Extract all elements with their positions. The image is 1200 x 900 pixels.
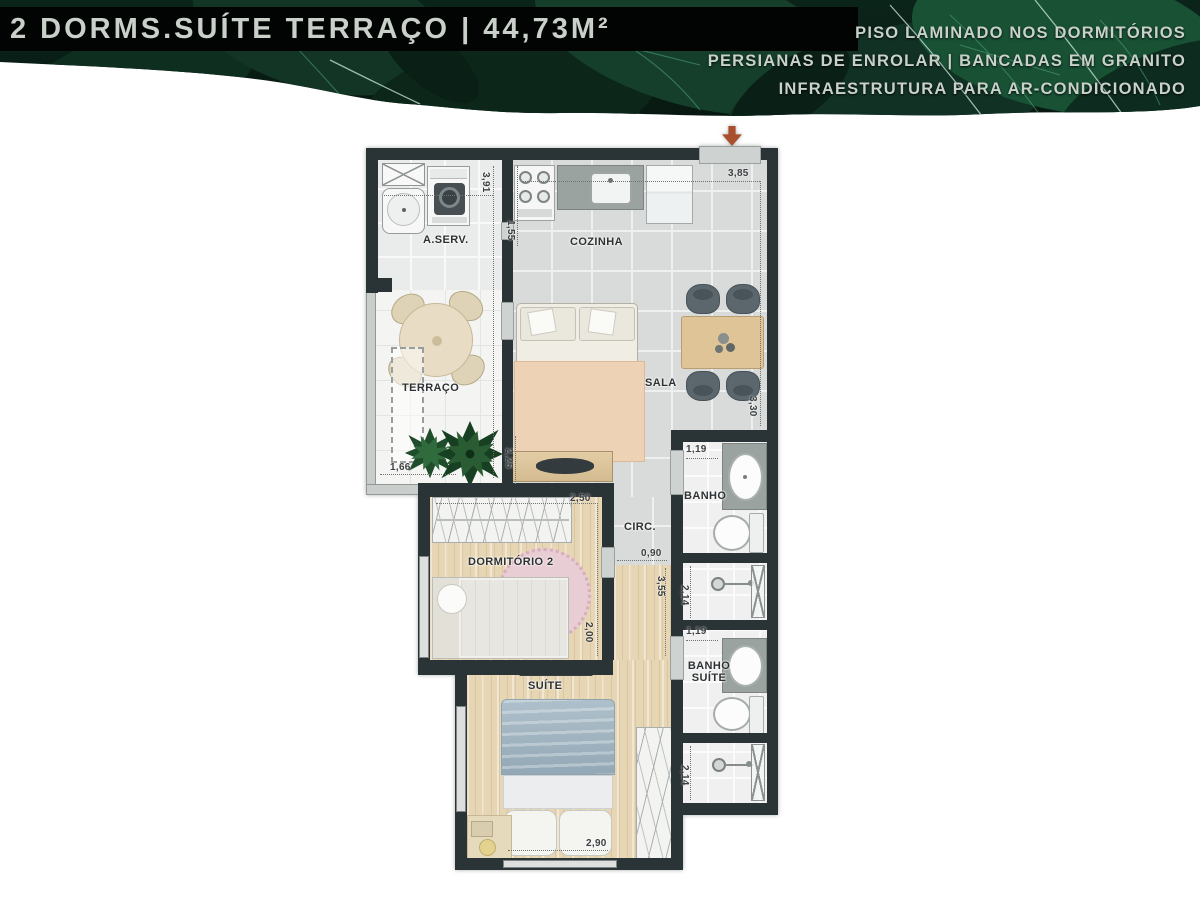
- washer-window: [439, 187, 460, 208]
- chair-seat: [693, 289, 713, 300]
- floor-plan: 3,91 1,55 3,85 3,30 2,25 1,66 2,50 2,00 …: [0, 0, 1200, 900]
- burner: [519, 171, 532, 184]
- door-bath-suite: [670, 636, 684, 680]
- dimension-line: [517, 166, 518, 246]
- dimension-line: [760, 181, 761, 426]
- entry-arrow-icon: [722, 126, 742, 146]
- tv-rack: [512, 451, 613, 482]
- laundry-cabinet: [382, 163, 425, 186]
- wall: [366, 148, 702, 160]
- door-bath: [670, 450, 684, 495]
- bath-counter: [722, 443, 767, 510]
- bed-pillow: [437, 584, 467, 614]
- burner: [537, 190, 550, 203]
- chair-seat: [733, 289, 753, 300]
- shower-glass: [751, 565, 765, 618]
- dimension-line: [686, 640, 718, 641]
- sofa-pillow: [587, 308, 616, 335]
- washer-door: [434, 183, 465, 215]
- wall: [366, 148, 378, 293]
- dimension-line: [597, 503, 598, 656]
- room-label-bedroom2: DORMITÓRIO 2: [468, 556, 553, 568]
- wall: [683, 553, 767, 563]
- wall: [502, 148, 513, 222]
- dimension-line: [508, 850, 608, 851]
- chair-seat: [693, 385, 713, 396]
- dining-chair: [726, 284, 760, 314]
- dimension-label: 2,14: [679, 585, 690, 606]
- sofa-pillow: [527, 308, 557, 336]
- shower-head-icon: [711, 577, 725, 591]
- dining-chair: [686, 371, 720, 401]
- entry-door: [699, 146, 761, 164]
- fridge: [646, 165, 693, 224]
- room-label-bath-suite: BANHO SUÍTE: [683, 660, 735, 684]
- washing-machine: [427, 166, 470, 226]
- rug-book: [471, 821, 493, 837]
- kitchen-counter: [557, 165, 644, 210]
- shower-glass: [751, 744, 765, 801]
- dimension-line: [523, 181, 760, 182]
- dimension-line: [690, 566, 691, 618]
- tv: [536, 458, 594, 474]
- wall: [418, 660, 613, 675]
- wall: [767, 148, 778, 815]
- dimension-line: [384, 195, 493, 196]
- wall: [683, 733, 767, 743]
- dimension-label: 2,00: [583, 622, 594, 643]
- wall: [683, 803, 767, 815]
- burner: [519, 190, 532, 203]
- room-label-suite: SUÍTE: [528, 680, 562, 692]
- kitchen-sink: [590, 172, 632, 205]
- toilet-tank: [749, 513, 764, 553]
- dimension-label: 1,55: [505, 220, 516, 241]
- rug-ball: [479, 839, 496, 856]
- single-bed: [432, 577, 569, 659]
- wardrobe-rail: [437, 519, 569, 521]
- dimension-line: [515, 436, 516, 484]
- dimension-line: [493, 166, 494, 478]
- dimension-line: [617, 560, 667, 561]
- dimension-label: 3,85: [728, 168, 749, 179]
- room-label-service: A.SERV.: [423, 234, 469, 246]
- sink-drain: [743, 475, 747, 479]
- washer-base: [432, 217, 467, 223]
- dimension-label: 1,66: [390, 462, 411, 473]
- stove: [514, 165, 555, 221]
- shower-head-icon: [712, 758, 726, 772]
- double-bed: [501, 699, 615, 859]
- dimension-label: 3,91: [480, 172, 491, 193]
- window: [419, 556, 429, 658]
- room-label-terrace: TERRAÇO: [402, 382, 459, 394]
- door-bedroom2: [601, 547, 615, 578]
- bed-blanket: [461, 580, 567, 656]
- door-terrace-glass: [501, 302, 514, 340]
- room-label-living: SALA: [645, 377, 677, 389]
- table-knob: [432, 336, 442, 346]
- living-rug: [514, 361, 645, 462]
- toilet-bowl: [713, 515, 751, 551]
- tank-drain: [402, 208, 406, 212]
- dimension-label: 2,14: [679, 765, 690, 786]
- chair-seat: [733, 385, 753, 396]
- wall: [502, 240, 513, 302]
- toilet-bowl: [713, 697, 751, 731]
- terrace-railing-bottom: [366, 484, 420, 495]
- room-label-kitchen: COZINHA: [570, 236, 623, 248]
- table-decor: [726, 343, 735, 352]
- dimension-label: 3,30: [747, 396, 758, 417]
- wall: [602, 497, 614, 547]
- sofa: [516, 303, 638, 369]
- suite-wardrobe: [636, 727, 673, 860]
- table-decor: [715, 345, 723, 353]
- terrace-railing-left: [366, 290, 376, 495]
- dimension-line: [686, 458, 718, 459]
- room-label-circulation: CIRC.: [624, 521, 656, 533]
- dimension-label: 3,55: [655, 576, 666, 597]
- window: [503, 860, 617, 868]
- table-decor: [718, 333, 729, 344]
- dimension-label: 2,25: [503, 448, 514, 469]
- dining-table: [681, 316, 764, 369]
- dimension-label: 2,50: [570, 493, 591, 504]
- room-label-bath: BANHO: [684, 490, 726, 502]
- dimension-label: 0,90: [641, 548, 662, 559]
- stove-controls: [517, 209, 552, 217]
- wall: [671, 430, 767, 442]
- dimension-line: [380, 474, 456, 475]
- dimension-label: 1,19: [686, 626, 707, 637]
- dining-chair: [686, 284, 720, 314]
- bed-sheet: [503, 775, 613, 809]
- washer-panel: [430, 169, 467, 179]
- toilet-tank: [749, 696, 764, 734]
- suite-rug: [467, 815, 512, 862]
- dimension-label: 1,19: [686, 444, 707, 455]
- bed-blanket: [501, 699, 615, 775]
- wall: [602, 578, 614, 660]
- dimension-line: [690, 746, 691, 800]
- wall: [366, 278, 392, 292]
- dimension-label: 2,90: [586, 838, 607, 849]
- window: [456, 706, 466, 812]
- page: 2 DORMS.SUÍTE TERRAÇO | 44,73M² PISO LAM…: [0, 0, 1200, 900]
- burner: [537, 171, 550, 184]
